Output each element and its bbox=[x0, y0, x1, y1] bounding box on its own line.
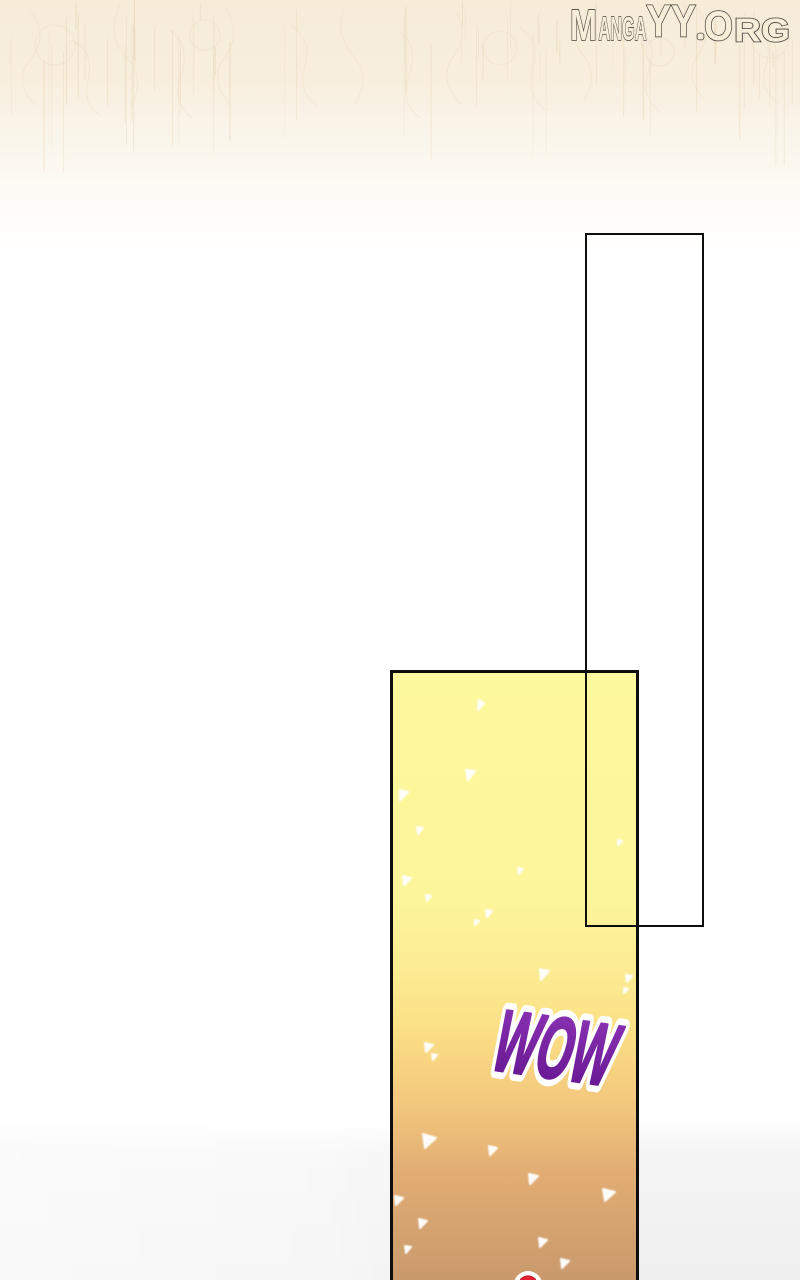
svg-text:O: O bbox=[704, 2, 733, 49]
svg-text:WOW: WOW bbox=[486, 992, 629, 1105]
svg-text:YY: YY bbox=[646, 0, 696, 47]
svg-text:M: M bbox=[570, 1, 597, 50]
svg-text:ANGA: ANGA bbox=[599, 10, 647, 47]
svg-text:RG: RG bbox=[734, 12, 790, 49]
